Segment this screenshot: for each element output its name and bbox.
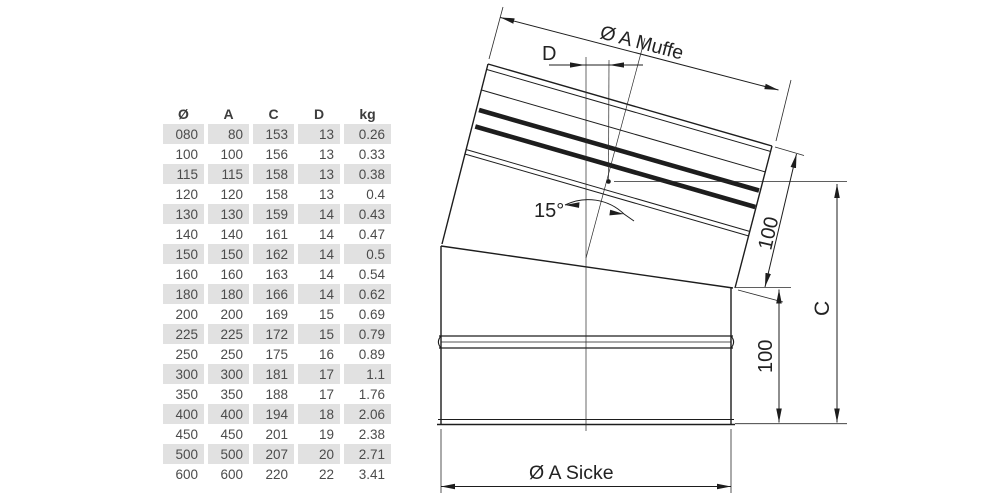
sicke-diameter-label: Ø A Sicke <box>529 462 614 484</box>
socket-rim-inner-line <box>487 70 771 152</box>
upper-pipe-rim <box>488 64 772 146</box>
upper-100-ext-top <box>775 147 804 156</box>
seal-stripe-upper <box>479 110 759 191</box>
angle-arc <box>565 200 634 221</box>
height-c-label: C <box>811 301 834 316</box>
angle-arrow-left <box>565 202 580 208</box>
centerlines <box>586 38 645 431</box>
socket-lower-band-a <box>466 150 750 232</box>
extension-lines <box>441 7 847 493</box>
d-arrow-right <box>609 62 624 67</box>
lower-length-label: 100 <box>755 340 777 373</box>
upper-length-label: 100 <box>754 215 783 252</box>
socket-band-line <box>482 90 766 172</box>
muffe-ext-right <box>776 80 791 141</box>
offset-d-label: D <box>542 43 556 65</box>
technical-drawing: Ø A Muffe D 15° 100 100 C Ø A Sicke <box>0 0 1000 500</box>
muffe-diameter-label: Ø A Muffe <box>598 22 686 65</box>
angle-label: 15° <box>534 200 564 222</box>
tilted-axis-line <box>586 38 645 258</box>
seal-stripe-lower <box>475 127 755 208</box>
upper-100-ext-bottom <box>738 290 783 302</box>
miter-joint-line <box>441 246 733 288</box>
axis-reference-dot <box>606 179 611 184</box>
pipe-bands <box>438 70 770 349</box>
dimension-lines <box>441 18 837 487</box>
page: { "table": { "headers": ["Ø", "A", "C", … <box>0 0 1000 500</box>
muffe-ext-left <box>489 7 503 59</box>
d-arrow-left <box>570 62 585 67</box>
pipe-outline <box>437 64 772 425</box>
